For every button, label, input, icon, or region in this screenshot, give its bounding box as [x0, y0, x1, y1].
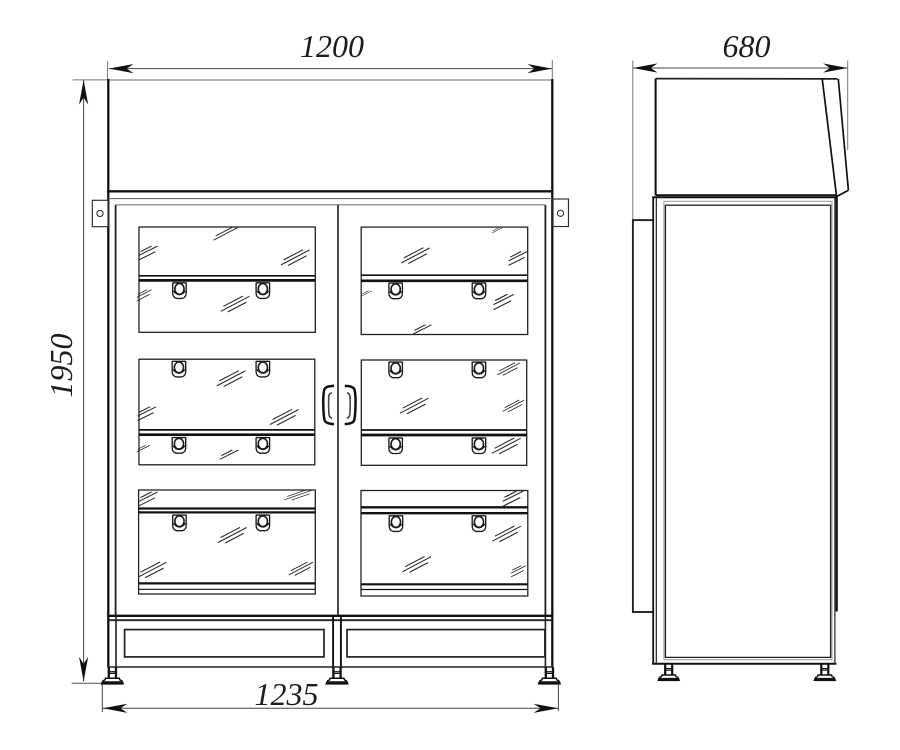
svg-text:1235: 1235: [255, 676, 319, 712]
svg-text:680: 680: [723, 28, 771, 64]
svg-text:1200: 1200: [300, 28, 364, 64]
svg-text:1950: 1950: [43, 334, 79, 398]
